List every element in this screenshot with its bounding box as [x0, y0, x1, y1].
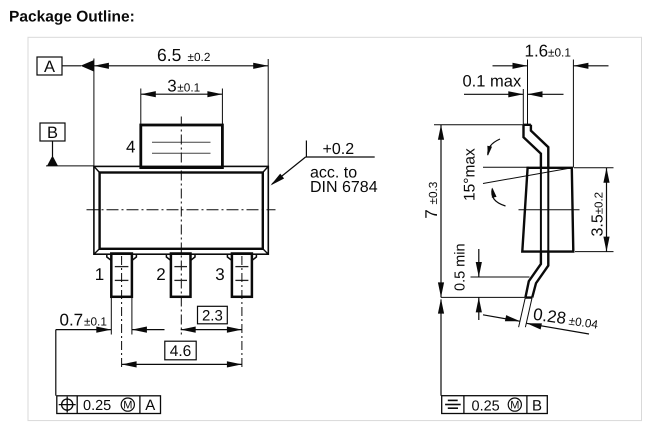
svg-text:B: B — [532, 397, 542, 414]
svg-text:1.6: 1.6 — [525, 42, 549, 61]
svg-text:15°max: 15°max — [462, 148, 479, 201]
svg-text:±0.1: ±0.1 — [84, 314, 107, 328]
svg-text:M: M — [510, 400, 519, 412]
svg-text:±0.2: ±0.2 — [188, 50, 211, 64]
svg-text:±0.1: ±0.1 — [177, 81, 200, 95]
svg-text:0.25: 0.25 — [83, 398, 111, 414]
svg-text:1: 1 — [95, 265, 104, 284]
svg-text:B: B — [47, 124, 58, 142]
svg-text:M: M — [123, 400, 132, 412]
svg-text:±0.1: ±0.1 — [548, 46, 571, 60]
svg-text:0.5 min: 0.5 min — [453, 243, 469, 291]
svg-text:3: 3 — [215, 265, 224, 284]
svg-text:A: A — [145, 397, 155, 414]
svg-text:A: A — [44, 58, 55, 76]
svg-text:2: 2 — [156, 265, 165, 284]
svg-text:+0.2: +0.2 — [323, 141, 355, 158]
svg-text:4.6: 4.6 — [170, 343, 192, 360]
svg-text:4: 4 — [126, 138, 135, 157]
svg-text:Package Outline:: Package Outline: — [9, 9, 135, 26]
svg-text:0.1 max: 0.1 max — [463, 73, 522, 91]
svg-text:6.5: 6.5 — [157, 45, 181, 65]
svg-text:DIN 6784: DIN 6784 — [310, 179, 378, 196]
svg-text:0.25: 0.25 — [472, 398, 500, 414]
svg-text:0.7: 0.7 — [60, 310, 84, 329]
svg-text:2.3: 2.3 — [202, 307, 223, 324]
svg-text:3: 3 — [167, 77, 176, 96]
